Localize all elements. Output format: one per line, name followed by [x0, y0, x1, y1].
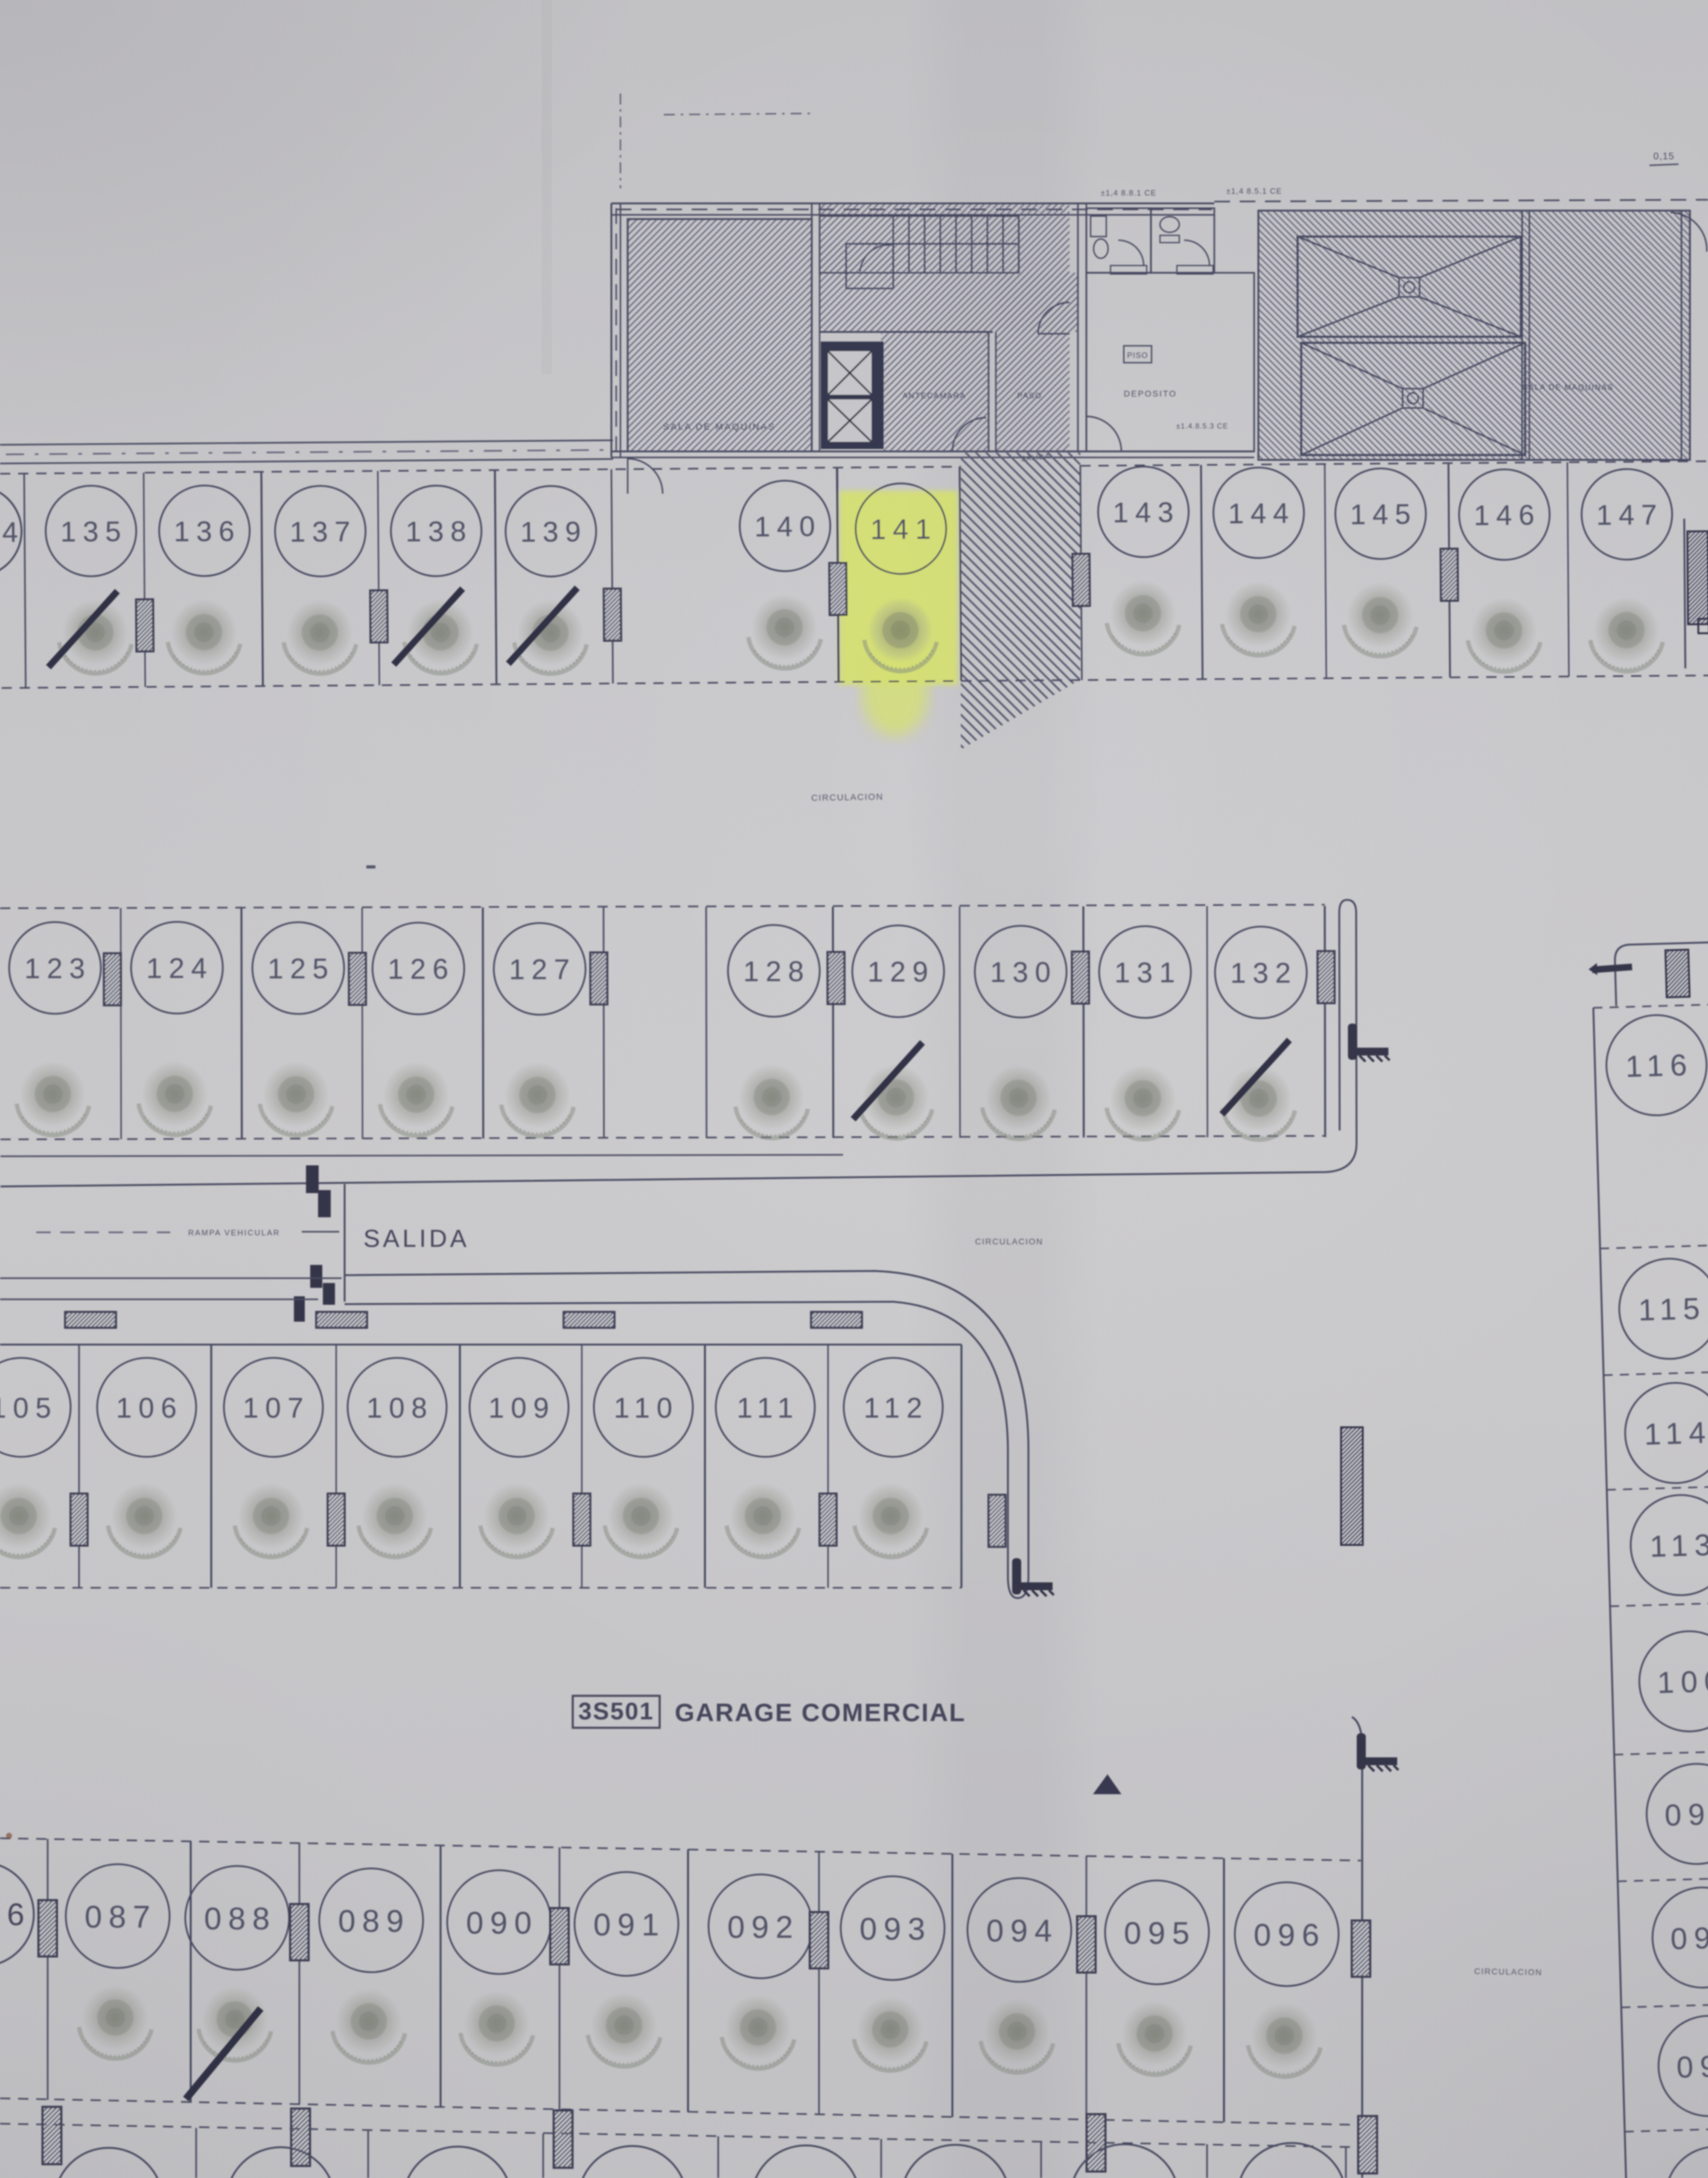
svg-text:105: 105: [0, 1392, 58, 1424]
svg-text:128: 128: [743, 955, 811, 987]
svg-text:137: 137: [290, 515, 357, 548]
svg-text:088: 088: [204, 1902, 276, 1937]
svg-text:145: 145: [1350, 498, 1418, 530]
svg-text:093: 093: [859, 1912, 932, 1947]
svg-text:135: 135: [60, 515, 128, 547]
svg-text:129: 129: [867, 955, 935, 987]
svg-text:SALIDA: SALIDA: [363, 1224, 470, 1252]
svg-text:125: 125: [267, 952, 335, 984]
svg-text:116: 116: [1625, 1048, 1694, 1083]
svg-text:091: 091: [593, 1908, 666, 1943]
svg-text:DEPOSITO: DEPOSITO: [1124, 389, 1177, 398]
svg-text:4: 4: [2, 516, 18, 548]
svg-text:136: 136: [174, 515, 241, 547]
svg-text:108: 108: [366, 1392, 433, 1424]
svg-text:3S501: 3S501: [578, 1698, 654, 1725]
svg-text:144: 144: [1228, 497, 1296, 529]
svg-text:127: 127: [509, 953, 576, 985]
svg-text:113: 113: [1649, 1528, 1708, 1564]
svg-text:089: 089: [338, 1904, 410, 1939]
svg-text:±1,4 8.5.1 CE: ±1,4 8.5.1 CE: [1226, 186, 1282, 196]
svg-text:106: 106: [116, 1392, 183, 1424]
svg-text:099: 099: [1664, 1797, 1708, 1832]
svg-text:131: 131: [1114, 957, 1182, 989]
svg-text:126: 126: [387, 953, 455, 985]
svg-text:100: 100: [1657, 1664, 1708, 1699]
svg-text:140: 140: [754, 510, 822, 543]
svg-text:115: 115: [1638, 1291, 1707, 1327]
svg-text:PISO: PISO: [1127, 351, 1148, 360]
svg-text:097: 097: [1676, 2049, 1708, 2084]
svg-text:124: 124: [146, 952, 214, 984]
svg-text:146: 146: [1474, 498, 1541, 531]
svg-text:090: 090: [466, 1906, 538, 1941]
svg-text:109: 109: [488, 1392, 555, 1424]
svg-text:112: 112: [864, 1392, 929, 1424]
svg-text:0,15: 0,15: [1653, 151, 1674, 162]
svg-text:132: 132: [1230, 957, 1298, 989]
svg-text:110: 110: [614, 1392, 679, 1424]
svg-text:111: 111: [737, 1392, 800, 1424]
svg-text:RAMPA VEHICULAR: RAMPA VEHICULAR: [188, 1228, 281, 1237]
svg-text:123: 123: [24, 952, 92, 984]
svg-text:147: 147: [1596, 498, 1664, 531]
svg-text:CIRCULACION: CIRCULACION: [1474, 1966, 1542, 1977]
svg-text:095: 095: [1124, 1916, 1196, 1951]
svg-text:PASO: PASO: [1017, 391, 1042, 400]
svg-text:139: 139: [520, 515, 588, 548]
svg-text:114: 114: [1644, 1416, 1708, 1451]
svg-text:SALA DE MAQUINAS: SALA DE MAQUINAS: [1522, 383, 1613, 392]
svg-text:130: 130: [990, 956, 1057, 988]
svg-text:CIRCULACION: CIRCULACION: [811, 792, 884, 803]
svg-text:092: 092: [727, 1910, 800, 1945]
svg-text:141: 141: [870, 513, 938, 546]
svg-text:GARAGE COMERCIAL: GARAGE COMERCIAL: [675, 1698, 966, 1727]
svg-text:098: 098: [1670, 1920, 1708, 1956]
svg-text:094: 094: [986, 1914, 1059, 1949]
svg-text:096: 096: [1254, 1918, 1326, 1953]
svg-text:107: 107: [243, 1392, 310, 1424]
svg-text:CIRCULACION: CIRCULACION: [975, 1237, 1044, 1246]
svg-text:±1.4.8.5.3 CE: ±1.4.8.5.3 CE: [1176, 422, 1228, 430]
svg-text:±1,4 8.8.1 CE: ±1,4 8.8.1 CE: [1101, 188, 1156, 197]
svg-text:143: 143: [1113, 496, 1181, 529]
svg-text:SALA DE MAQUINAS: SALA DE MAQUINAS: [663, 422, 776, 432]
svg-text:138: 138: [406, 515, 473, 547]
svg-text:087: 087: [84, 1900, 157, 1935]
svg-text:ANTECAMARA: ANTECAMARA: [902, 391, 966, 400]
svg-text:6: 6: [7, 1897, 25, 1932]
